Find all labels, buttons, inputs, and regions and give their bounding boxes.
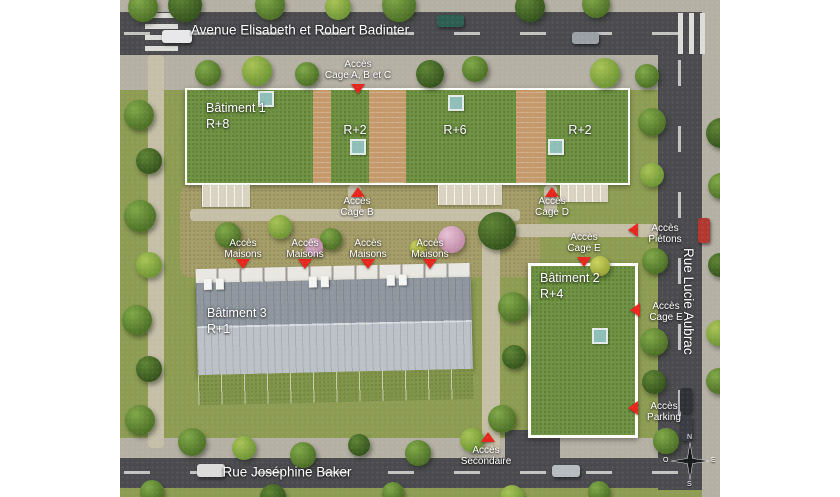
label-acces-cage-d: Accès Cage D — [535, 196, 569, 218]
car — [437, 15, 464, 27]
label-wing-r2-east: R+2 — [568, 122, 591, 138]
arrow-cage-abc-icon — [351, 84, 365, 94]
tree — [416, 60, 444, 88]
tree — [462, 56, 488, 82]
label-acces-cage-b: Accès Cage B — [340, 196, 373, 218]
label-wing-r6: R+6 — [443, 122, 466, 138]
tree — [640, 163, 664, 187]
tree — [640, 328, 668, 356]
acces-line2: Cage E — [567, 243, 600, 254]
batiment2-floors: R+4 — [540, 286, 600, 302]
batiment3-name: Bâtiment 3 — [207, 305, 267, 321]
tree — [478, 212, 516, 250]
label-acces-maisons-1: Accès Maisons — [224, 238, 261, 260]
tree — [124, 100, 154, 130]
rear-gardens-strip — [198, 369, 474, 405]
acces-line1: Accès — [224, 238, 261, 249]
acces-line2: Piétons — [648, 234, 681, 245]
sidewalk-top — [120, 0, 720, 12]
street-label-rue-lucie-aubrac: Rue Lucie Aubrac — [681, 248, 696, 355]
acces-line1: Accès — [325, 59, 391, 70]
label-acces-cage-abc: Accès Cage A, B et C — [325, 59, 391, 81]
tree — [635, 64, 659, 88]
compass-east: E — [711, 457, 716, 464]
batiment2-name: Bâtiment 2 — [540, 270, 600, 286]
tree — [488, 405, 516, 433]
street-label-rue-josephine-baker: Rue Joséphine Baker — [222, 464, 351, 479]
tree — [178, 428, 206, 456]
label-acces-parking: Accès Parking — [647, 401, 681, 423]
acces-line1: Accès — [647, 401, 681, 412]
tree — [382, 482, 404, 497]
chimney — [309, 276, 317, 287]
tree — [295, 62, 319, 86]
arrow-maisons-1-icon — [236, 259, 250, 269]
acces-line2: Cage B — [340, 207, 373, 218]
batiment1-floors: R+8 — [206, 116, 266, 132]
acces-line2: Parking — [647, 412, 681, 423]
acces-line2: Secondaire — [461, 456, 512, 467]
acces-line1: Accès — [340, 196, 373, 207]
tree — [638, 108, 666, 136]
label-acces-cage-e-right: Accès Cage E — [649, 301, 682, 323]
tree — [124, 200, 156, 232]
tree — [125, 405, 155, 435]
compass-north: N — [687, 434, 692, 441]
compass-west: O — [663, 457, 668, 464]
arrow-maisons-4-icon — [423, 259, 437, 269]
tree — [136, 148, 162, 174]
chimney — [399, 274, 407, 285]
tree — [232, 436, 256, 460]
ground-terrace-1 — [202, 185, 250, 207]
label-acces-maisons-4: Accès Maisons — [411, 238, 448, 260]
terrace-deck-3 — [516, 90, 546, 183]
skylight-3 — [448, 95, 464, 111]
chimney — [204, 279, 212, 290]
street-label-avenue-badinter: Avenue Elisabeth et Robert Badinter — [191, 22, 409, 37]
compass-star — [673, 444, 707, 478]
acces-line1: Accès — [648, 223, 681, 234]
label-wing-r2-west: R+2 — [343, 122, 366, 138]
tree — [268, 215, 292, 239]
arrow-maisons-3-icon — [361, 259, 375, 269]
label-acces-pietons: Accès Piétons — [648, 223, 681, 245]
arrow-secondaire-icon — [481, 432, 495, 442]
tree — [136, 356, 162, 382]
car — [552, 465, 580, 477]
siteplan-page: Avenue Elisabeth et Robert Badinter Rue … — [0, 0, 840, 497]
tree — [122, 305, 152, 335]
acces-line1: Accès — [411, 238, 448, 249]
arrow-maisons-2-icon — [298, 259, 312, 269]
arrow-parking-icon — [628, 401, 638, 415]
chimney — [321, 276, 329, 287]
acces-line1: Accès — [349, 238, 386, 249]
label-acces-secondaire: Accès Secondaire — [461, 445, 512, 467]
car — [680, 388, 692, 413]
arrow-cage-e-right-icon — [630, 303, 640, 317]
car — [572, 32, 599, 44]
skylight-2 — [350, 139, 366, 155]
acces-line1: Accès — [535, 196, 569, 207]
acces-line2: Cage E — [649, 312, 682, 323]
label-acces-cage-e-top: Accès Cage E — [567, 232, 600, 254]
tree — [498, 292, 528, 322]
chimney — [387, 275, 395, 286]
tree — [502, 345, 526, 369]
compass-rose-icon: N S E O — [666, 437, 714, 485]
terrace-deck-1 — [313, 90, 331, 183]
tree — [642, 370, 666, 394]
compass-south: S — [687, 481, 692, 488]
label-batiment3: Bâtiment 3 R+1 — [207, 305, 267, 338]
acces-line2: Cage D — [535, 207, 569, 218]
label-batiment2: Bâtiment 2 R+4 — [540, 270, 600, 303]
acces-line1: Accès — [567, 232, 600, 243]
tree — [140, 480, 164, 497]
tree — [195, 60, 221, 86]
car — [698, 218, 710, 243]
label-acces-maisons-2: Accès Maisons — [286, 238, 323, 260]
acces-line1: Accès — [649, 301, 682, 312]
crosswalk-east — [678, 13, 708, 54]
aerial-siteplan: Avenue Elisabeth et Robert Badinter Rue … — [120, 0, 720, 497]
car — [162, 30, 192, 43]
label-acces-maisons-3: Accès Maisons — [349, 238, 386, 260]
tree — [348, 434, 370, 456]
chimney — [216, 278, 224, 289]
acces-line1: Accès — [286, 238, 323, 249]
arrow-cage-e-top-icon — [577, 257, 591, 267]
acces-line2: Cage A, B et C — [325, 70, 391, 81]
skylight-4 — [548, 139, 564, 155]
batiment1-name: Bâtiment 1 — [206, 100, 266, 116]
ground-terrace-2 — [438, 185, 502, 205]
car — [197, 464, 225, 477]
tree — [242, 56, 272, 86]
tree — [642, 248, 668, 274]
tree — [588, 481, 610, 497]
batiment3-floors: R+1 — [207, 321, 267, 337]
arrow-pietons-icon — [628, 223, 638, 237]
tree — [136, 252, 162, 278]
tree — [590, 58, 620, 88]
sidewalk-east — [702, 0, 720, 497]
acces-line1: Accès — [461, 445, 512, 456]
skylight-5 — [592, 328, 608, 344]
tree — [405, 440, 431, 466]
label-batiment1: Bâtiment 1 R+8 — [206, 100, 266, 133]
terrace-deck-2 — [369, 90, 406, 183]
